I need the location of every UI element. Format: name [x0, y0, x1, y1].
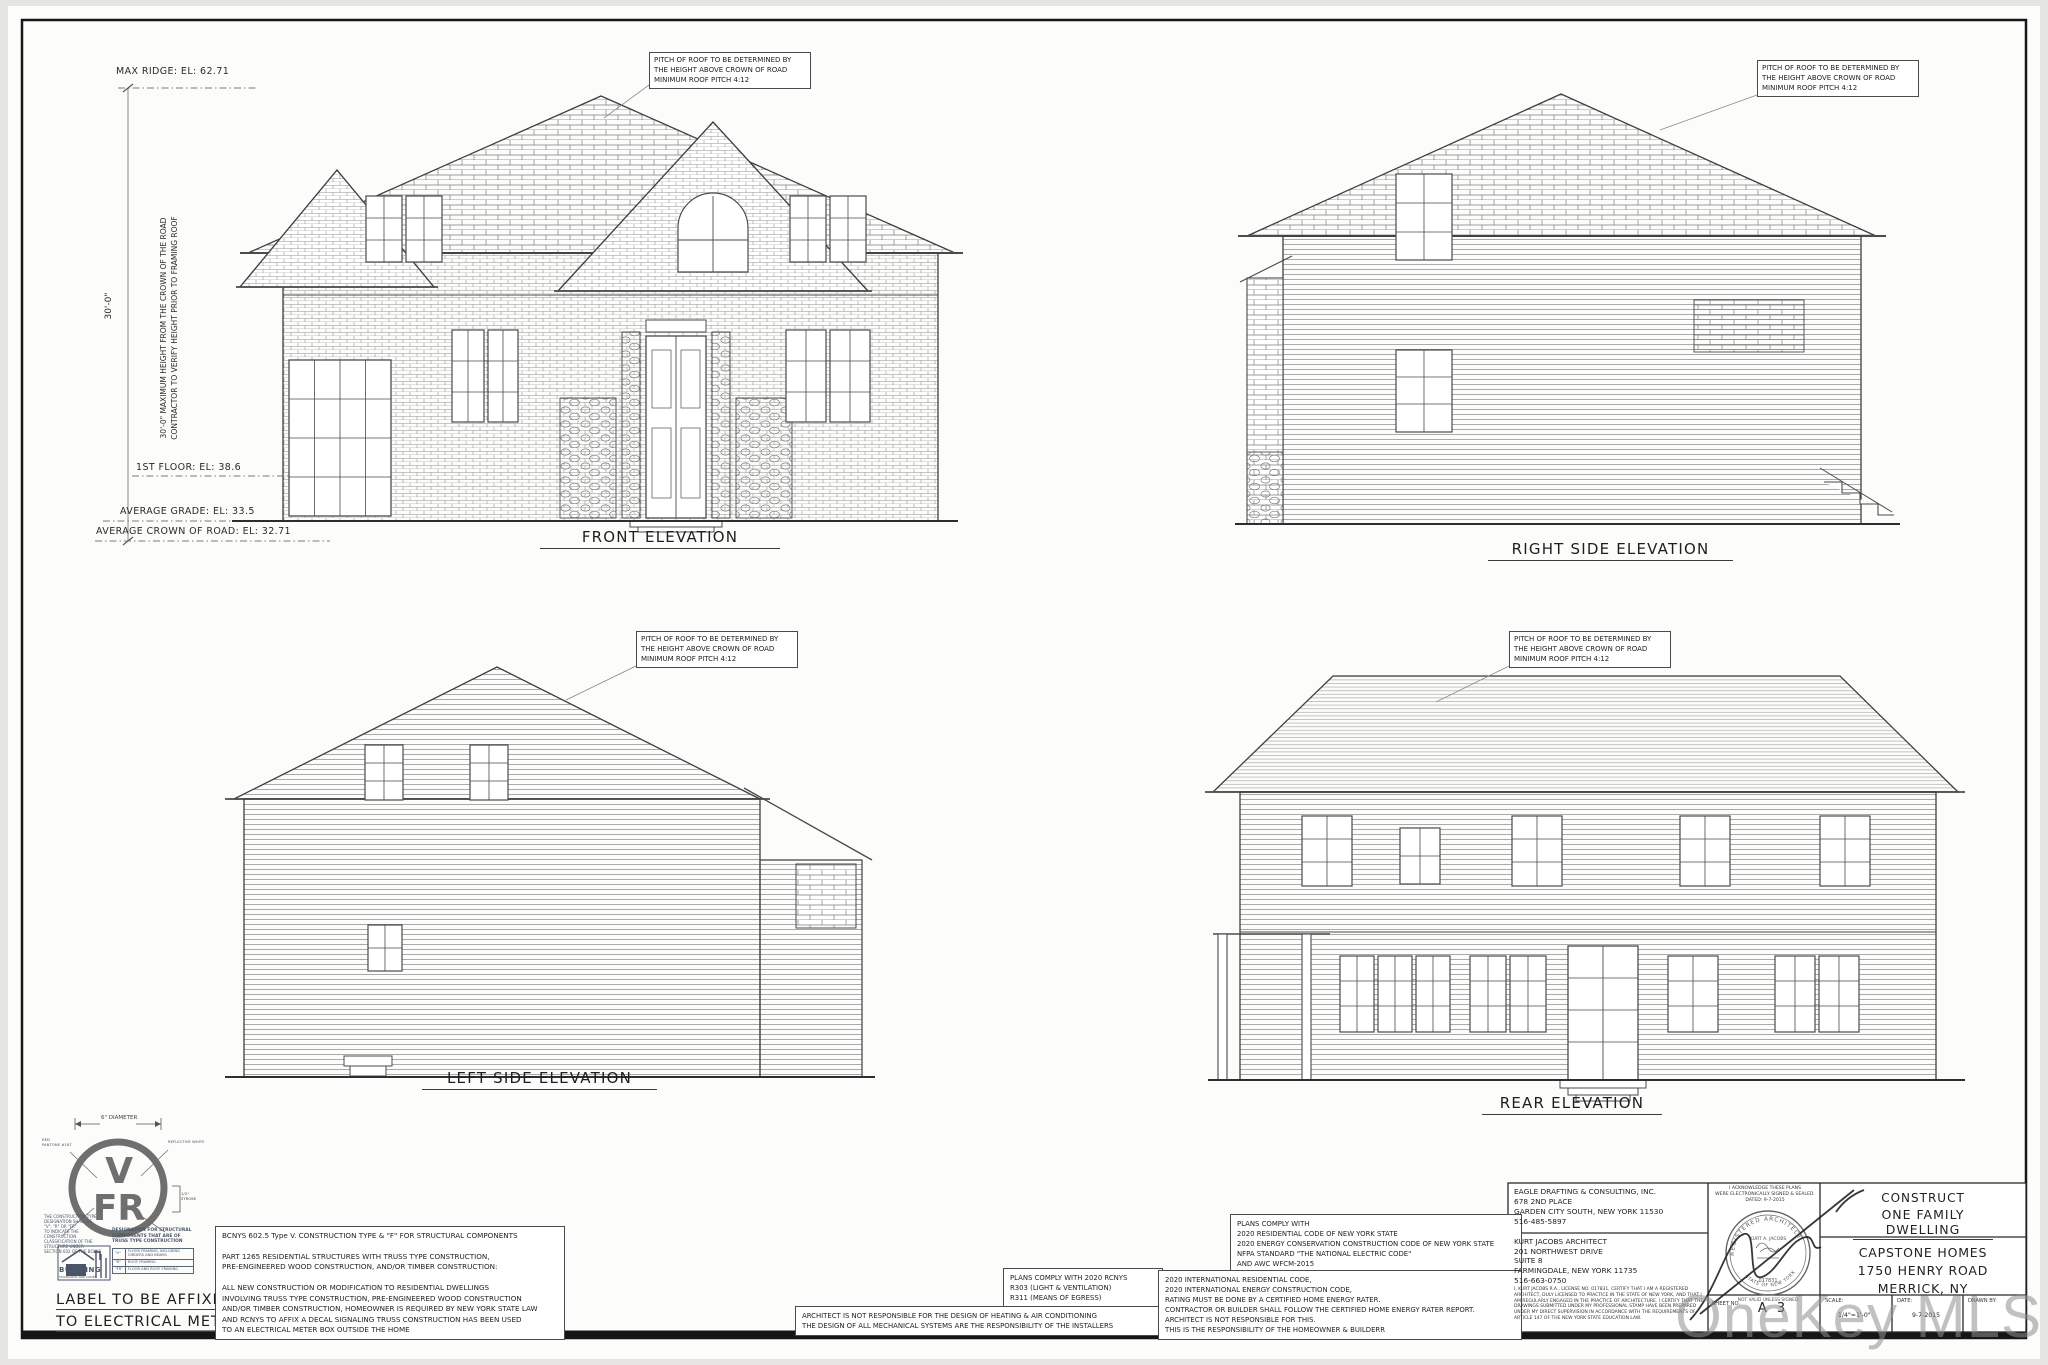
pitch-note-rear: PITCH OF ROOF TO BE DETERMINED BY THE HE…: [1509, 631, 1671, 668]
code-compliance-note: PLANS COMPLY WITH 2020 RESIDENTIAL CODE …: [1230, 1214, 1522, 1274]
table-row: "FR"FLOOR AND ROOF FRAMING: [113, 1266, 194, 1273]
building-logo-text: BUILDING: [59, 1266, 101, 1274]
decal-desc-v: FLOOR FRAMING, INCLUDING GIRDERS AND BEA…: [125, 1249, 193, 1260]
affix-label-line1: LABEL TO BE AFFIXED: [56, 1292, 235, 1310]
decal-diameter-note: 6" DIAMETER: [101, 1115, 137, 1121]
left-side-elevation-drawing: [225, 667, 875, 1077]
table-row: "R"ROOF FRAMING: [113, 1259, 194, 1266]
project-type-line2: ONE FAMILY DWELLING: [1853, 1207, 1993, 1240]
decal-code-v: "V": [113, 1249, 126, 1260]
onekey-mls-watermark: OneKey MLS: [1675, 1282, 2042, 1351]
left-side-elevation-title: LEFT SIDE ELEVATION: [422, 1069, 657, 1090]
project-type-line1: CONSTRUCT: [1820, 1191, 2026, 1205]
front-elevation-drawing: [232, 96, 963, 532]
pitch-note-front: PITCH OF ROOF TO BE DETERMINED BY THE HE…: [649, 52, 811, 89]
energy-code-note: 2020 INTERNATIONAL RESIDENTIAL CODE, 202…: [1158, 1270, 1522, 1340]
acknowledgement-note: I ACKNOWLEDGE THESE PLANS WERE ELECTRONI…: [1712, 1186, 1818, 1204]
pitch-note-left: PITCH OF ROOF TO BE DETERMINED BY THE HE…: [636, 631, 798, 668]
decal-code-r: "R": [113, 1259, 126, 1266]
avg-grade-label: AVERAGE GRADE: EL: 33.5: [120, 506, 255, 517]
architect-info: KURT JACOBS ARCHITECT 201 NORTHWEST DRIV…: [1514, 1237, 1704, 1285]
decal-designation-table: "V"FLOOR FRAMING, INCLUDING GIRDERS AND …: [112, 1248, 194, 1274]
bcnys-notes: BCNYS 602.5 Type V. CONSTRUCTION TYPE & …: [215, 1226, 565, 1340]
avg-crown-label: AVERAGE CROWN OF ROAD: EL: 32.71: [96, 526, 291, 537]
max-ridge-label: MAX RIDGE: EL: 62.71: [116, 66, 229, 77]
right-side-elevation-drawing: [1235, 94, 1900, 524]
building-logo-subtext: STANDARDS AND CODES: [59, 1275, 97, 1279]
rear-elevation-title: REAR ELEVATION: [1482, 1094, 1662, 1115]
decal-code-fr: "FR": [113, 1266, 126, 1273]
table-row: "V"FLOOR FRAMING, INCLUDING GIRDERS AND …: [113, 1249, 194, 1260]
decal-red-note: RED PANTONE #187: [42, 1138, 72, 1147]
decal-designation-note: DESIGNATION FOR STRUCTURAL COMPONENTS TH…: [112, 1228, 207, 1245]
rear-elevation-drawing: [1205, 676, 1965, 1101]
max-height-note: 30'-0" MAXIMUM HEIGHT FROM THE CROWN OF …: [159, 173, 179, 483]
seal-name-text: KURT A. JACOBS: [1750, 1236, 1787, 1242]
elevation-sheet: REGISTERED ARCHITECT STATE OF NEW YORK K…: [0, 0, 2048, 1365]
rcnys-notes: PLANS COMPLY WITH 2020 RCNYS R303 (LIGHT…: [1003, 1268, 1163, 1308]
decal-left-paragraph: THE CONSTRUCTION TYPE DESIGNATION SHALL …: [44, 1214, 106, 1254]
architect-responsibility-note: ARCHITECT IS NOT RESPONSIBLE FOR THE DES…: [795, 1306, 1163, 1336]
pitch-note-right: PITCH OF ROOF TO BE DETERMINED BY THE HE…: [1757, 60, 1919, 97]
drafting-firm-info: EAGLE DRAFTING & CONSULTING, INC. 678 2N…: [1514, 1187, 1704, 1227]
decal-letter-v: V: [98, 1155, 140, 1189]
overall-height-dim: 30'-0": [104, 258, 116, 354]
decal-white-note: REFLECTIVE WHITE: [168, 1140, 208, 1145]
decal-stroke-note: 1/2" STROKE: [181, 1192, 196, 1201]
decal-desc-r: ROOF FRAMING: [125, 1259, 193, 1266]
front-elevation-title: FRONT ELEVATION: [540, 528, 780, 549]
first-floor-label: 1ST FLOOR: EL: 38.6: [136, 462, 241, 473]
right-side-elevation-title: RIGHT SIDE ELEVATION: [1488, 540, 1733, 561]
sheet-lineart: REGISTERED ARCHITECT STATE OF NEW YORK K…: [0, 0, 2048, 1365]
decal-desc-fr: FLOOR AND ROOF FRAMING: [125, 1266, 193, 1273]
